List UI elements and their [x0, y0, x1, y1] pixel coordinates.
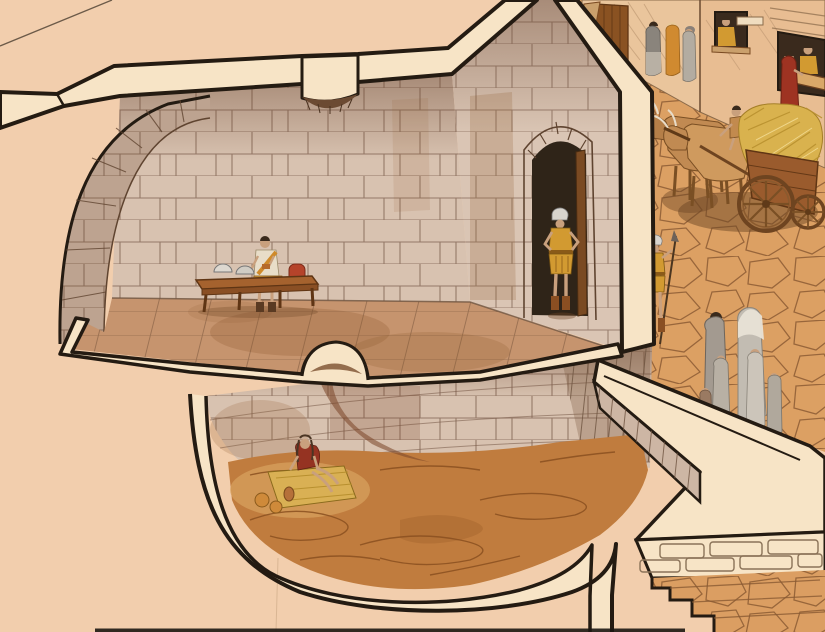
prison-cutaway-illustration	[0, 0, 825, 632]
gray-robed-man	[646, 22, 661, 76]
window-sill	[712, 46, 750, 54]
orange-robed-woman	[666, 22, 680, 76]
door-jamb	[576, 150, 587, 316]
wall-beam	[737, 17, 763, 25]
wall-stain	[470, 92, 516, 300]
photo-edge	[95, 629, 685, 632]
stair-wall	[636, 532, 825, 578]
illustration-stage	[0, 0, 825, 632]
gray-robed-woman	[683, 26, 696, 82]
